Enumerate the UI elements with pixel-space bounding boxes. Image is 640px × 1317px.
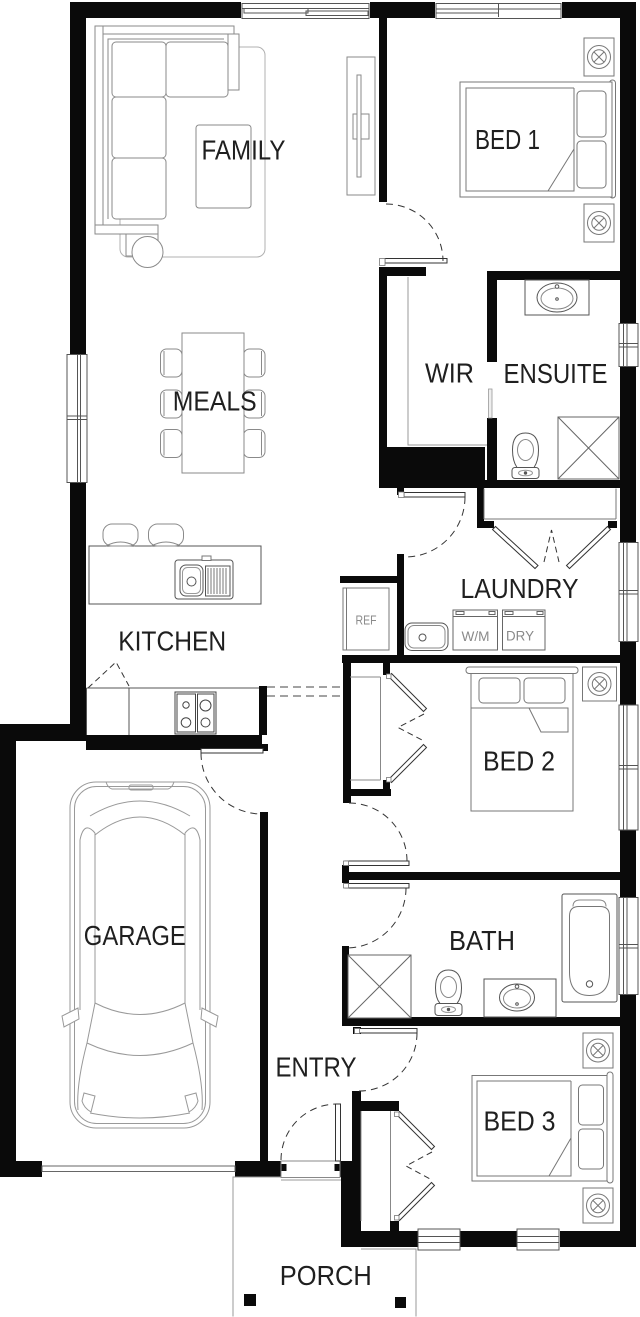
svg-text:WIR: WIR <box>425 358 474 389</box>
svg-text:KITCHEN: KITCHEN <box>118 626 226 657</box>
svg-text:REF: REF <box>356 614 377 628</box>
svg-text:DRY: DRY <box>506 628 535 644</box>
svg-text:FAMILY: FAMILY <box>202 135 286 166</box>
svg-text:LAUNDRY: LAUNDRY <box>461 573 579 604</box>
svg-text:BED 3: BED 3 <box>484 1106 556 1137</box>
svg-text:ENSUITE: ENSUITE <box>504 358 608 389</box>
svg-text:MEALS: MEALS <box>173 386 257 417</box>
svg-text:GARAGE: GARAGE <box>84 920 186 951</box>
svg-text:W/M: W/M <box>462 628 490 644</box>
svg-text:BED 1: BED 1 <box>475 124 540 155</box>
svg-text:PORCH: PORCH <box>280 1260 372 1291</box>
svg-text:BATH: BATH <box>449 925 515 956</box>
svg-text:ENTRY: ENTRY <box>276 1052 357 1083</box>
svg-text:BED 2: BED 2 <box>483 746 555 777</box>
